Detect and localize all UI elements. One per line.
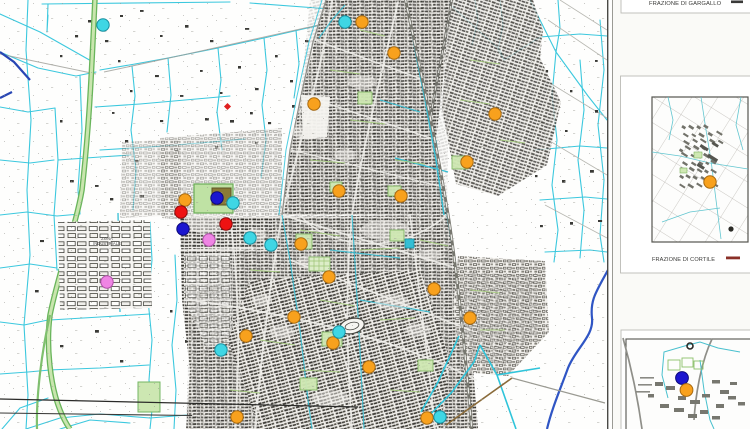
svg-text:FRAZIONE DI CORTILE: FRAZIONE DI CORTILE <box>652 257 715 263</box>
svg-text:FRAZIONE DI GARGALLO: FRAZIONE DI GARGALLO <box>649 1 722 7</box>
svg-text:INDUSTRIALE: INDUSTRIALE <box>93 241 121 246</box>
